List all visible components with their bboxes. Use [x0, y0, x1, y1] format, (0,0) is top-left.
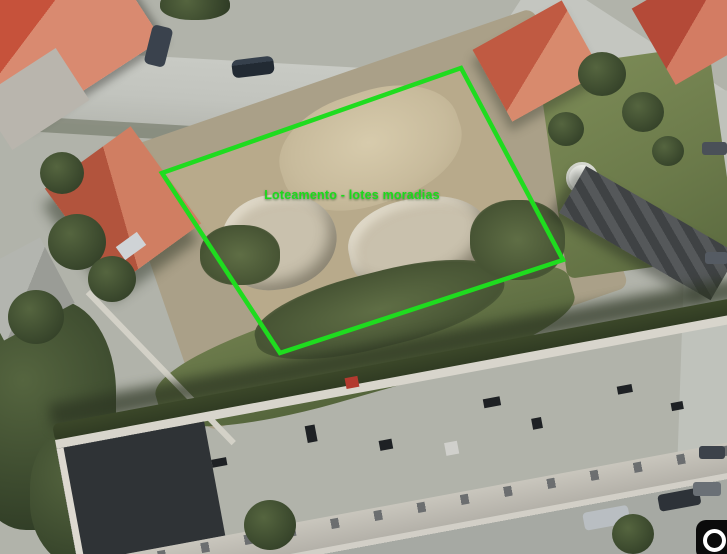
tree: [612, 514, 654, 554]
parked-car: [699, 446, 725, 459]
tree: [578, 52, 626, 96]
rooftop-unit: [444, 441, 459, 456]
tree: [40, 152, 84, 194]
tree: [622, 92, 664, 132]
satellite-map-canvas[interactable]: Loteamento - lotes moradias: [0, 0, 727, 554]
circle-ring-icon: [703, 529, 726, 552]
tree: [8, 290, 64, 344]
tree: [652, 136, 684, 166]
red-rooftop-object: [345, 376, 360, 389]
map-control-button[interactable]: [696, 520, 727, 554]
tree: [88, 256, 136, 302]
scrub-vegetation: [470, 200, 565, 280]
roof-vent: [531, 417, 543, 430]
parked-car: [702, 142, 727, 155]
parked-car: [693, 482, 721, 496]
parked-car: [705, 252, 727, 264]
tree: [548, 112, 584, 146]
tree: [244, 500, 296, 550]
lot-label: Loteamento - lotes moradias: [250, 188, 454, 202]
scrub-vegetation: [200, 225, 280, 285]
